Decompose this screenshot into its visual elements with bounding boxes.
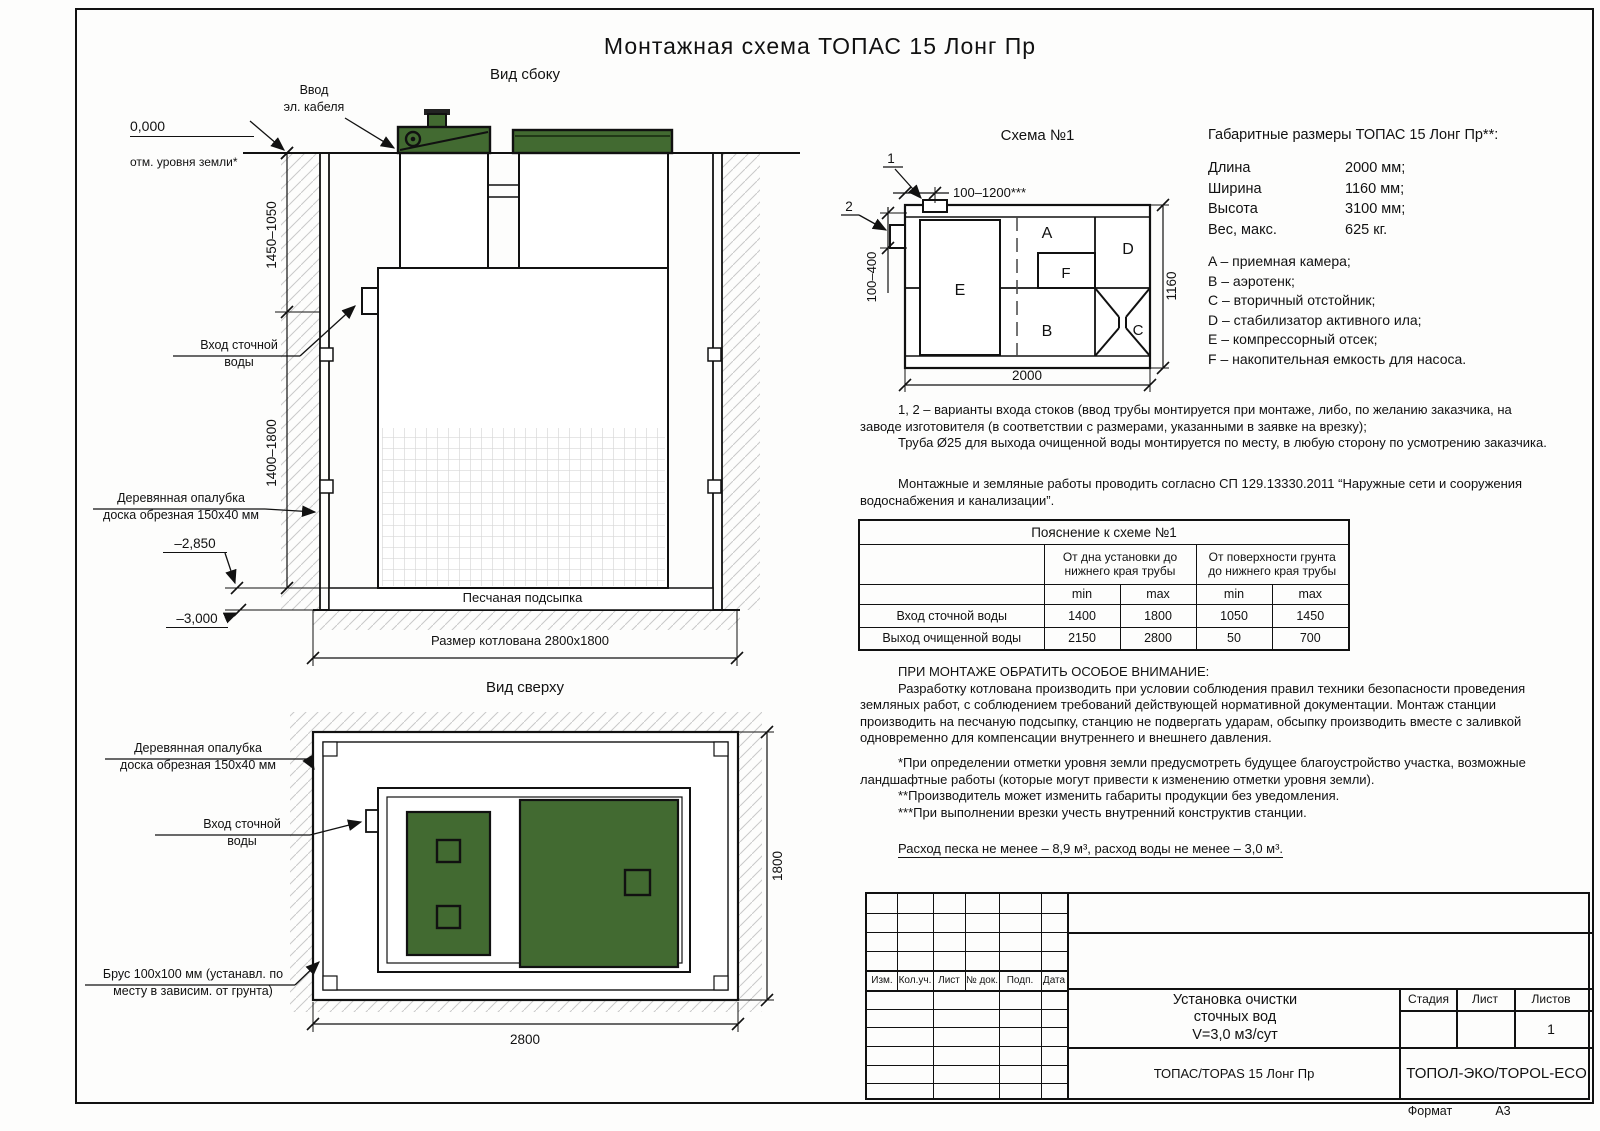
format-value: А3 <box>1478 1103 1528 1120</box>
callout-2: 2 <box>845 199 853 214</box>
dim-value: 1160 мм; <box>1345 181 1505 197</box>
comp-d: D <box>1122 241 1134 258</box>
title-block: Изм. Кол.уч. Лист № док. Подп. Дата Уста… <box>865 892 1590 1100</box>
table-row: Выход очищенной воды 2150 2800 50 700 <box>859 627 1349 650</box>
table-min: min <box>1196 584 1272 604</box>
dim-label: Ширина <box>1208 181 1343 197</box>
rev-header-ndok: № док. <box>965 971 999 989</box>
zero-level-label: 0,000 отм. уровня земли* <box>130 101 254 188</box>
table-max: max <box>1120 584 1196 604</box>
cell: 2800 <box>1120 627 1196 650</box>
dim-upper-text: 1450–1050 <box>264 201 279 269</box>
sand-label: Песчаная подсыпка <box>430 589 615 606</box>
dim-label: Высота <box>1208 201 1343 217</box>
dim-left-text: 100–400 <box>864 252 879 303</box>
rev-header-data: Дата <box>1041 971 1067 989</box>
dim-label: Длина <box>1208 160 1343 176</box>
stage-label: Стадия <box>1401 990 1456 1008</box>
table-min: min <box>1044 584 1120 604</box>
sheet-label: Лист <box>1456 990 1514 1008</box>
attention-block: ПРИ МОНТАЖЕ ОБРАТИТЬ ОСОБОЕ ВНИМАНИЕ: Ра… <box>860 664 1560 747</box>
table-title: Пояснение к схеме №1 <box>859 520 1349 544</box>
consumption-note: Расход песка не менее – 8,9 м³, расход в… <box>898 840 1283 858</box>
cell: 1400 <box>1044 604 1120 627</box>
rev-header-podp: Подп. <box>999 971 1041 989</box>
row-label: Выход очищенной воды <box>859 627 1044 650</box>
dims-title: Габаритные размеры ТОПАС 15 Лонг Пр**: <box>1208 127 1568 144</box>
comp-e: E <box>955 282 966 299</box>
schema-drawing: A B C D E F 1 2 100–1200*** <box>835 145 1185 405</box>
inlet-stub <box>362 288 378 314</box>
dim-value: 625 кг. <box>1345 222 1505 238</box>
soil-hatch-right <box>722 153 760 610</box>
row-label: Вход сточной воды <box>859 604 1044 627</box>
top-view-title: Вид сверху <box>435 679 615 696</box>
cell: 1450 <box>1272 604 1349 627</box>
dim-2800-text: 2800 <box>510 1032 540 1047</box>
comp-c: C <box>1133 322 1144 339</box>
rev-header-izm: Изм. <box>867 971 897 989</box>
rev-header-list: Лист <box>933 971 965 989</box>
zero-mark: 0,000 <box>130 118 254 137</box>
inlet-label: Вход сточной воды <box>176 337 302 371</box>
pit-size-label: Размер котлована 2800х1800 <box>375 632 665 649</box>
cell: 2150 <box>1044 627 1120 650</box>
table-group2: От поверхности грунта до нижнего края тр… <box>1196 544 1349 584</box>
attention-body: Разработку котлована производить при усл… <box>860 681 1560 747</box>
formwork-label-top: Деревянная опалубка доска обрезная 150х4… <box>108 740 288 774</box>
legend-item: B – аэротенк; <box>1208 272 1578 292</box>
dim-1800-text: 1800 <box>770 851 785 881</box>
star-note-3: ***При выполнении врезки учесть внутренн… <box>860 805 1565 822</box>
legend-item: C – вторичный отстойник; <box>1208 291 1578 311</box>
lid-hatch-2 <box>437 906 460 928</box>
cable-entry-label: Ввод эл. кабеля <box>260 82 368 116</box>
attention-title: ПРИ МОНТАЖЕ ОБРАТИТЬ ОСОБОЕ ВНИМАНИЕ: <box>860 664 1560 681</box>
cell: 700 <box>1272 627 1349 650</box>
company-name: ТОПОЛ-ЭКО/TOPOL-ECO <box>1401 1049 1592 1098</box>
mark-3000: –3,000 <box>166 610 228 628</box>
dim-value: 3100 мм; <box>1345 201 1505 217</box>
comp-a: A <box>1042 225 1053 242</box>
format-label: Формат <box>1385 1103 1475 1120</box>
lid-hatch-3 <box>625 870 650 895</box>
compartment-legend: A – приемная камера; B – аэротенк; C – в… <box>1208 252 1578 369</box>
cell: 1800 <box>1120 604 1196 627</box>
callout-1: 1 <box>887 151 895 166</box>
lid-small-top <box>407 812 490 955</box>
cell: 1050 <box>1196 604 1272 627</box>
sheets-label: Листов <box>1514 990 1588 1008</box>
legend-item: D – стабилизатор активного ила; <box>1208 311 1578 331</box>
table-empty <box>859 584 1044 604</box>
inlet-label-top: Вход сточной воды <box>178 816 306 850</box>
star-note-1: *При определении отметки уровня земли пр… <box>860 755 1565 788</box>
lid-small <box>398 109 490 153</box>
comp-b: B <box>1042 323 1053 340</box>
dim-left <box>880 207 907 293</box>
zero-note: отм. уровня земли* <box>130 154 254 171</box>
note-sp: Монтажные и земляные работы проводить со… <box>860 476 1555 509</box>
legend-item: E – компрессорный отсек; <box>1208 330 1578 350</box>
drawing-sheet: Монтажная схема ТОПАС 15 Лонг Пр Вид сбо… <box>0 0 1600 1131</box>
dim-top-text: 100–1200*** <box>953 185 1026 200</box>
table-max: max <box>1272 584 1349 604</box>
sheets-value: 1 <box>1514 1012 1588 1045</box>
lid-large-top <box>520 800 678 967</box>
inlet-stub-top <box>366 810 378 832</box>
lid-hatch-1 <box>437 840 460 862</box>
formwork-label: Деревянная опалубка доска обрезная 150х4… <box>93 490 269 524</box>
table-group1: От дна установки до нижнего края трубы <box>1044 544 1196 584</box>
backfill-texture <box>382 428 665 586</box>
tank-neck-1 <box>400 153 488 268</box>
soil-hatch-bottom <box>313 610 740 630</box>
note-pipe: Труба Ø25 для выхода очищенной воды монт… <box>860 435 1555 452</box>
tank-neck-2 <box>519 153 668 268</box>
doc-title: Установка очистки сточных вод V=3,0 м3/с… <box>1073 990 1397 1046</box>
table-corner <box>859 544 1044 584</box>
notes-sp: Монтажные и земляные работы проводить со… <box>860 476 1555 509</box>
explanation-table: Пояснение к схеме №1 От дна установки до… <box>858 519 1350 651</box>
note-variants: 1, 2 – варианты входа стоков (ввод трубы… <box>860 402 1555 435</box>
notes-variants: 1, 2 – варианты входа стоков (ввод трубы… <box>860 402 1555 452</box>
page-title: Монтажная схема ТОПАС 15 Лонг Пр <box>540 33 1100 60</box>
dim-lower-text: 1400–1800 <box>264 419 279 487</box>
star-note-2: **Производитель может изменить габариты … <box>860 788 1565 805</box>
comp-f: F <box>1061 265 1070 282</box>
table-row: Вход сточной воды 1400 1800 1050 1450 <box>859 604 1349 627</box>
beam-label: Брус 100х100 мм (устанавл. по месту в за… <box>83 966 303 1000</box>
dim-label: Вес, макс. <box>1208 222 1343 238</box>
side-view-title: Вид сбоку <box>435 66 615 83</box>
schema-title: Схема №1 <box>975 127 1100 144</box>
mark-2850: –2,850 <box>163 535 227 553</box>
dim-width-text: 2000 <box>1012 368 1042 383</box>
legend-item: A – приемная камера; <box>1208 252 1578 272</box>
dim-value: 2000 мм; <box>1345 160 1505 176</box>
cell: 50 <box>1196 627 1272 650</box>
product-name: ТОПАС/TOPAS 15 Лонг Пр <box>1069 1049 1399 1098</box>
dim-height-text: 1160 <box>1164 271 1179 300</box>
legend-item: F – накопительная емкость для насоса. <box>1208 350 1578 370</box>
star-notes: *При определении отметки уровня земли пр… <box>860 755 1565 821</box>
rev-header-koluch: Кол.уч. <box>897 971 933 989</box>
lid-large <box>513 130 672 153</box>
